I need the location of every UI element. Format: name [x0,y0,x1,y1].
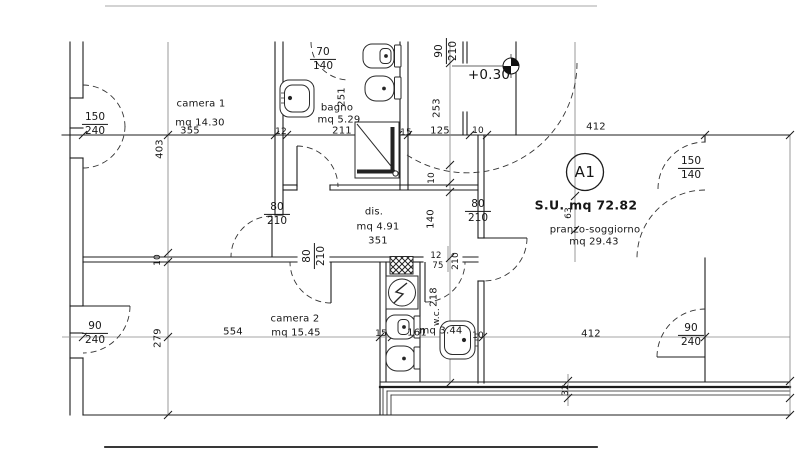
dim-12: 12 [275,127,287,137]
window-bagno-size: 70 140 [310,46,336,72]
window-pranzo-arc-bottom [637,190,705,258]
door-entrance-height: 210 [447,38,460,64]
door-pranzo-size: 80 210 [465,198,491,224]
wc-bidet-icon [386,346,420,371]
window-soggiorno-width: 90 [678,322,704,336]
dim-15: 15 [400,128,412,138]
dim-211: 211 [332,126,352,137]
door-pranzo-height: 210 [465,212,491,225]
dim-12-wc: 12 [430,251,441,261]
dim-210-wc-door: 210 [451,252,461,270]
dim-355: 355 [180,126,200,137]
window-camera2-height: 240 [82,334,108,347]
window-bagno-width: 70 [310,46,336,60]
window-camera1-size: 150 240 [82,111,108,137]
dim-10-wall: 10 [153,254,163,266]
dim-218: 218 [429,287,440,307]
dim-412-mid: 412 [581,329,601,340]
room-area-bagno: mq 5.29 [318,115,361,126]
dim-10-center: 10 [427,172,437,184]
window-pranzo-size: 150 140 [678,155,704,181]
window-camera2-size: 90 240 [82,320,108,346]
dim-403: 403 [155,139,166,159]
dim-75-wc-door: 75 [432,261,443,271]
walls [62,42,790,447]
floor-plan-canvas: camera 1 mq 14.30 bagno mq 5.29 dis. mq … [0,0,800,450]
unit-label: A1 [575,163,596,181]
room-label-camera1: camera 1 [177,99,226,110]
shaft-hatch [390,257,413,275]
dim-10-mid: 10 [472,331,484,341]
elevation-label: +0.30 [468,67,510,83]
door-camera1-width: 80 [264,201,290,215]
shower-icon [355,122,399,178]
boiler-icon [386,276,418,309]
dim-279: 279 [153,328,164,348]
bagno-toilet-icon [363,44,401,68]
door-camera2-height: 210 [315,243,328,269]
door-camera2-width: 80 [301,243,315,269]
room-label-wc: w.c. [432,308,442,326]
dim-161: 161 [407,328,427,339]
door-pranzo-arc [484,238,527,281]
room-label-dis: dis. [365,207,383,218]
window-camera1-width: 150 [82,111,108,125]
window-soggiorno-size: 90 240 [678,322,704,348]
door-camera1-height: 210 [264,215,290,228]
bagno-sink-icon [280,80,314,117]
door-bagno-arc [297,146,338,187]
dim-351: 351 [368,236,388,247]
door-camera1-size: 80 210 [264,201,290,227]
room-area-dis: mq 4.91 [357,222,400,233]
dim-554: 554 [223,327,243,338]
room-label-camera2: camera 2 [271,314,320,325]
window-pranzo-height: 140 [678,169,704,182]
window-bagno-height: 140 [310,60,336,73]
dim-10: 10 [472,126,484,136]
bagno-bidet-icon [365,76,401,101]
dim-15-mid: 15 [375,329,387,339]
window-camera1-height: 240 [82,125,108,138]
window-camera2-width: 90 [82,320,108,334]
dim-125: 125 [430,126,450,137]
room-area-pranzo: mq 29.43 [569,237,619,248]
dim-140: 140 [426,209,437,229]
window-pranzo-width: 150 [678,155,704,169]
door-camera2-size: 80 210 [301,243,327,269]
surface-label: S.U. mq 72.82 [535,198,638,213]
dim-32: 32 [561,384,571,396]
door-entrance-size: 90 210 [433,38,459,64]
floor-plan-drawing [0,0,800,450]
door-entrance-width: 90 [433,38,447,64]
dim-412-top: 412 [586,122,606,133]
room-area-camera2: mq 15.45 [271,328,321,339]
room-label-pranzo: pranzo-soggiorno [550,225,641,236]
dim-251: 251 [337,87,348,107]
dim-253: 253 [432,98,443,118]
door-pranzo-width: 80 [465,198,491,212]
window-soggiorno-height: 240 [678,336,704,349]
